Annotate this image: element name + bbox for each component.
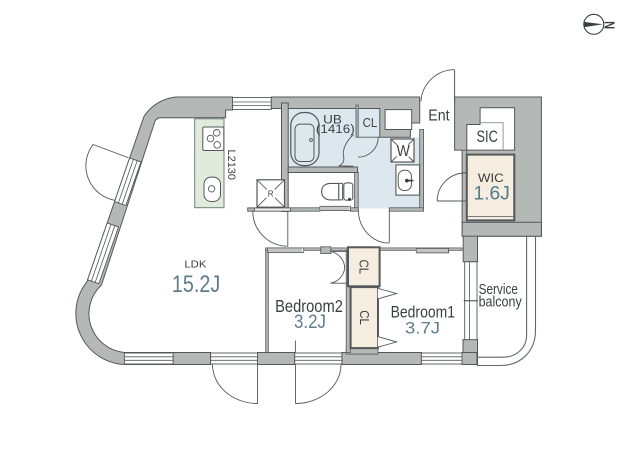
svg-text:LDK: LDK [184, 258, 206, 270]
svg-text:balcony: balcony [479, 295, 523, 311]
svg-text:1.6J: 1.6J [474, 184, 510, 205]
svg-text:3.7J: 3.7J [405, 320, 440, 338]
svg-text:CL: CL [357, 310, 371, 325]
svg-text:N: N [601, 21, 617, 29]
svg-text:L2130: L2130 [225, 150, 237, 181]
svg-text:(1416): (1416) [316, 124, 355, 136]
svg-text:15.2J: 15.2J [172, 271, 220, 298]
svg-text:CL: CL [363, 116, 378, 130]
svg-text:Ent: Ent [428, 107, 450, 124]
svg-text:3.2J: 3.2J [294, 312, 326, 333]
svg-text:SIC: SIC [477, 128, 498, 146]
svg-text:W: W [397, 143, 411, 160]
svg-text:R: R [268, 189, 274, 198]
svg-text:CL: CL [356, 259, 370, 274]
